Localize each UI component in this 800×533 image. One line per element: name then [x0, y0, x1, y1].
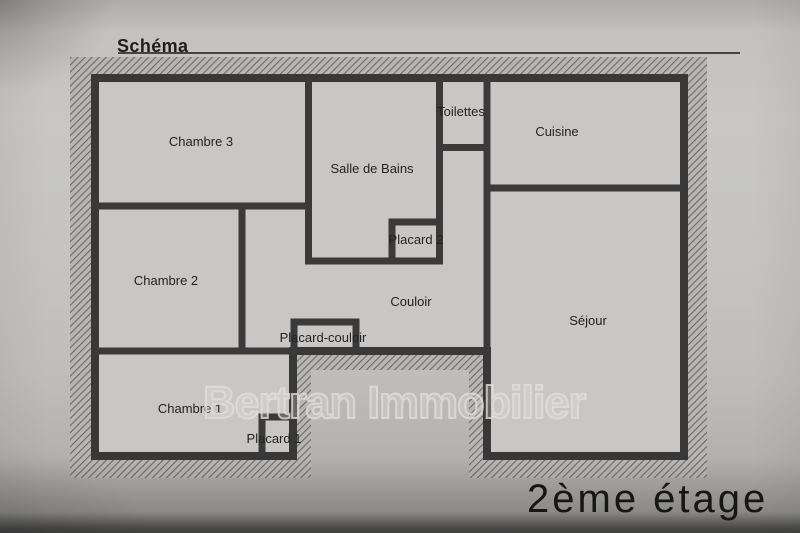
room-label-cuisine: Cuisine	[535, 124, 578, 139]
room-label-salle-de-bains: Salle de Bains	[330, 161, 414, 176]
room-label-placard-2: Placard 2	[389, 232, 444, 247]
title-underline-rule	[118, 52, 740, 54]
room-label-sejour: Séjour	[569, 313, 607, 328]
room-label-toilettes: Toilettes	[437, 104, 485, 119]
scanned-floor-plan-page: Schéma Chambre 3 Chambre 2 Chambre 1 Sal…	[0, 0, 800, 533]
room-label-placard-1: Placard 1	[247, 431, 302, 446]
floor-label: 2ème étage	[527, 477, 768, 522]
agency-watermark: Bertran Immobilier	[203, 377, 585, 429]
room-label-couloir: Couloir	[390, 294, 432, 309]
floor-plan-drawing: Chambre 3 Chambre 2 Chambre 1 Salle de B…	[0, 0, 800, 533]
room-label-chambre-2: Chambre 2	[134, 273, 198, 288]
room-label-chambre-3: Chambre 3	[169, 134, 233, 149]
room-label-placard-couloir: Placard-couloir	[280, 330, 367, 345]
